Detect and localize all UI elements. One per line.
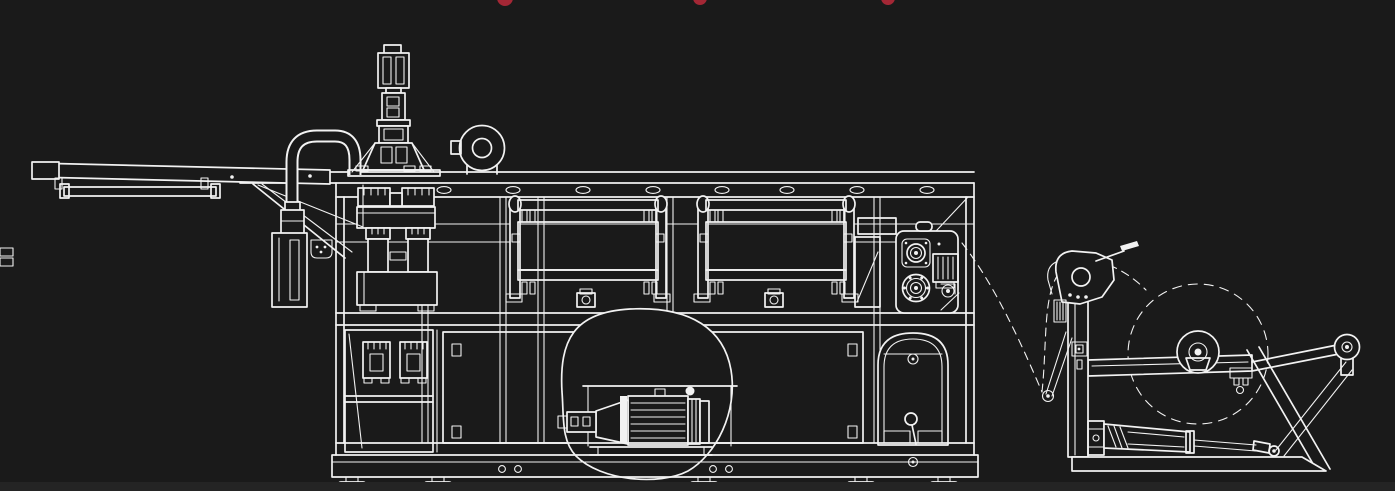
watermark-dot [693, 0, 707, 5]
blower-fan [451, 126, 505, 175]
hydraulic-cylinder [1088, 421, 1270, 455]
forming-press [357, 188, 437, 311]
feeder-tower [348, 45, 440, 176]
mount-bracket [363, 342, 390, 383]
filter-slab [272, 233, 307, 307]
machine-drawing-canvas [0, 0, 1395, 491]
vacuum-pipe [272, 136, 355, 307]
watermark-dot [881, 0, 895, 5]
technical-drawing [0, 0, 1395, 491]
lower-cabinet [345, 330, 433, 452]
drive-motor-callout [558, 309, 737, 480]
roll-hub [1177, 331, 1219, 373]
bottom-strip [0, 482, 1395, 491]
mount-bracket [400, 342, 427, 383]
pull-roll-station [855, 218, 959, 313]
watermark-dots [497, 0, 895, 6]
roll-unwinder [1043, 241, 1360, 471]
watermark-dot [497, 0, 513, 6]
edge-bracket [0, 248, 13, 266]
heater-module-1 [506, 196, 670, 307]
heater-module-2 [694, 196, 858, 307]
output-conveyor-table [32, 162, 363, 258]
arched-cabinet-door [878, 333, 948, 445]
brake-head [1048, 241, 1139, 322]
